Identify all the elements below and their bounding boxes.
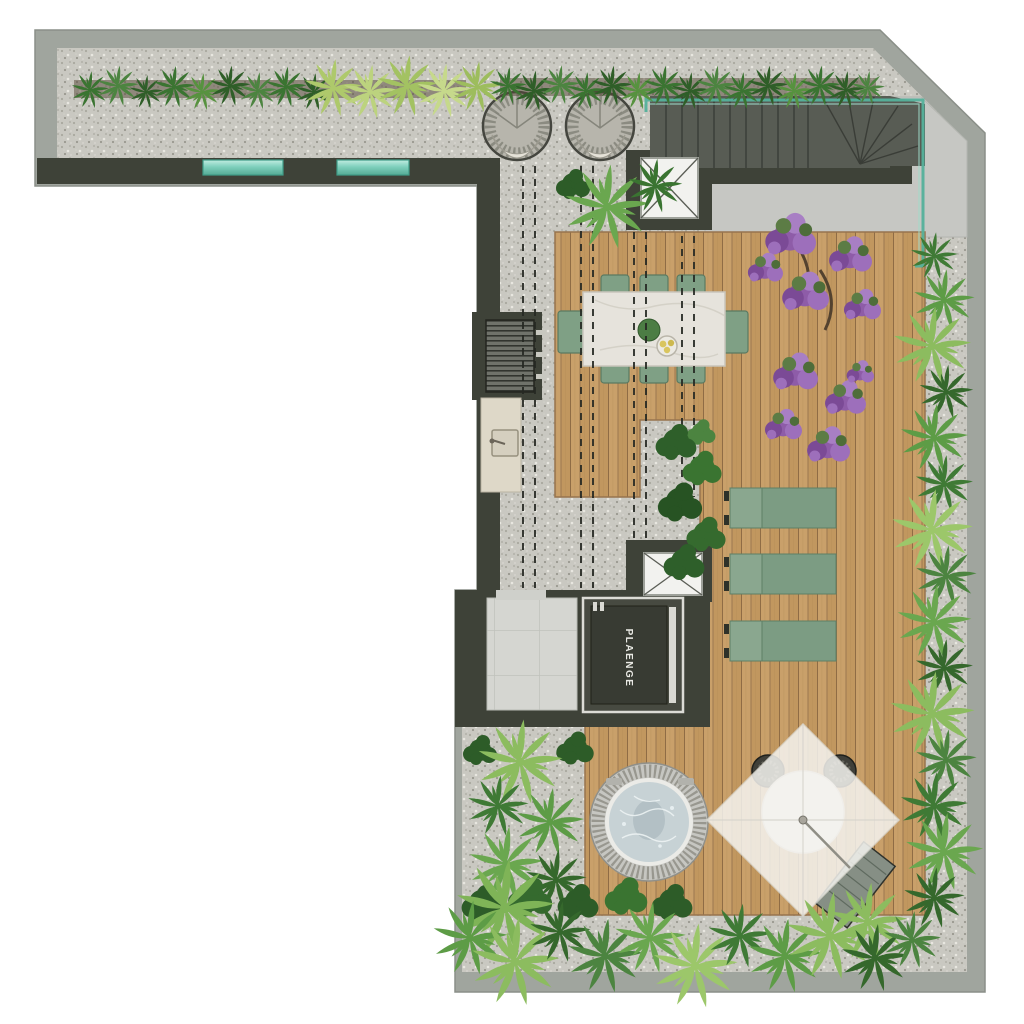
- floor-plan-canvas: PLAENGE: [0, 0, 1024, 1024]
- grille-tab: [536, 352, 546, 357]
- faucet-base: [490, 439, 495, 444]
- sun-lounger: [724, 488, 836, 528]
- hot-tub: [590, 763, 708, 881]
- door-threshold: [496, 590, 546, 600]
- elevator-brand-label: PLAENGE: [623, 629, 634, 688]
- fruit: [660, 341, 667, 348]
- elevator-door-tick: [600, 602, 604, 611]
- stair-winder: [890, 96, 925, 166]
- elevator-rail: [669, 607, 676, 703]
- grille-icon: [486, 320, 534, 392]
- tub-step: [678, 778, 694, 785]
- centerpiece-plant-icon: [638, 319, 660, 341]
- egg-chair: [483, 92, 551, 160]
- egg-chair: [566, 92, 634, 160]
- sun-lounger: [724, 554, 836, 594]
- elevator-plaenge: PLAENGE: [583, 598, 683, 712]
- tub-step: [606, 778, 622, 785]
- chair-icon: [558, 311, 584, 353]
- grille-tab: [536, 374, 546, 379]
- chair-icon: [722, 311, 748, 353]
- sun-lounger: [724, 621, 836, 661]
- elevator-door-tick: [593, 602, 597, 611]
- parasol-pole: [799, 816, 807, 824]
- glass-panel-icon: [337, 160, 409, 175]
- fruit: [668, 340, 674, 346]
- fruit: [664, 347, 670, 353]
- grille-tab: [536, 330, 546, 335]
- lobby-floor: [487, 598, 577, 710]
- glass-panel-icon: [203, 160, 283, 175]
- sun-loungers: [724, 488, 836, 661]
- outdoor-counter: [481, 398, 521, 492]
- tile-lobby: [487, 590, 577, 710]
- floor-plan: PLAENGE: [0, 0, 1024, 1024]
